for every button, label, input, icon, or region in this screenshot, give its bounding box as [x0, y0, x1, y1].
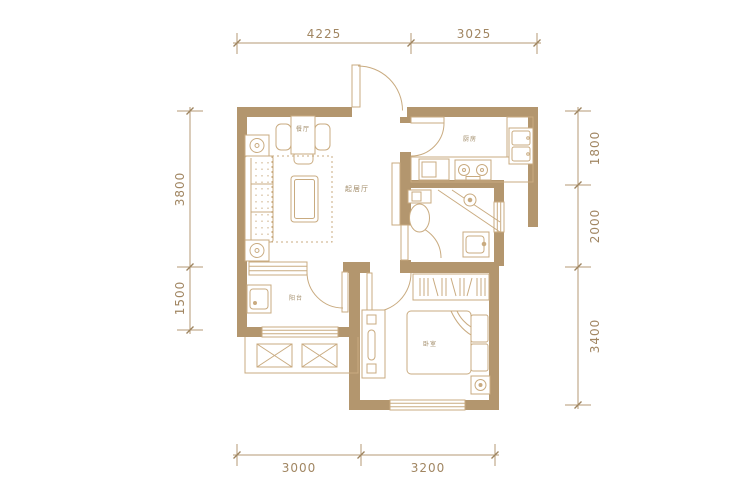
label-balcony: 阳台: [289, 294, 303, 302]
window-bathroom-right: [494, 202, 504, 232]
dim-bottom-1: 3000: [282, 461, 317, 475]
coffee-table: [291, 176, 318, 222]
dim-right-1: 1800: [588, 131, 602, 166]
window-bedroom-bottom: [390, 400, 465, 410]
pillow-1: [471, 315, 488, 342]
entry-door-arc: [358, 66, 403, 111]
pillow-2: [471, 344, 488, 371]
lamp-bottom-center: [255, 249, 259, 253]
platform-box-1: [257, 344, 292, 367]
label-bedroom: 卧室: [423, 340, 437, 348]
wardrobe: [413, 274, 489, 300]
wall-top-right: [407, 107, 538, 117]
kitchen-door-leaf: [411, 117, 444, 123]
washing-machine: [247, 285, 271, 313]
dim-right-3: 3400: [588, 319, 602, 354]
dim-top-2: 3025: [457, 27, 492, 41]
kitchen-door: [411, 117, 444, 156]
dim-right-2: 2000: [588, 209, 602, 244]
dim-bottom: [233, 444, 499, 466]
kitchen-door-arc: [411, 123, 444, 156]
wall-bath-right-upper: [494, 188, 504, 202]
wall-kitchen-bath-divider: [400, 180, 504, 188]
sofa: [245, 156, 273, 242]
furniture-bedroom: [362, 274, 490, 394]
balcony-door-arc: [307, 272, 343, 308]
label-kitchen: 厨房: [463, 135, 477, 143]
bedroom-door: [367, 273, 411, 313]
dim-left-2: 1500: [173, 281, 187, 316]
nightstand: [471, 376, 490, 394]
floor-plan-svg: 餐厅 起居厅 厨房 阳台 卧室: [0, 0, 740, 493]
window-balcony-bottom: [262, 327, 338, 337]
dim-top: [233, 33, 541, 54]
window-balcony-divider: [249, 262, 307, 275]
wall-balcony-sill-left: [237, 327, 262, 337]
dim-left-1: 3800: [173, 172, 187, 207]
toilet: [408, 190, 431, 232]
bedroom-door-arc: [372, 273, 411, 312]
shower-corner: [438, 190, 500, 232]
furniture-balcony: [247, 285, 271, 313]
dining-chair-right: [315, 124, 330, 150]
wall-living-bedroom-divider: [343, 262, 370, 273]
dining-chair-left: [276, 124, 291, 150]
dim-top-1: 4225: [307, 27, 342, 41]
wall-balcony-sill-right: [338, 327, 360, 337]
balcony-exterior-platform: [245, 337, 358, 373]
bathroom-door-leaf: [401, 225, 408, 260]
wall-bedroom-bottom-right: [464, 400, 499, 410]
bedroom-door-leaf: [367, 273, 372, 313]
balcony-door-leaf: [342, 272, 348, 312]
dining-table: [291, 116, 315, 154]
label-dining: 餐厅: [296, 125, 310, 133]
kitchen-sink: [509, 128, 533, 164]
lamp-top-center: [255, 144, 259, 148]
wall-bath-right-lower: [494, 232, 504, 266]
label-living: 起居厅: [345, 185, 369, 193]
entry-door: [352, 65, 403, 111]
entry-door-leaf: [352, 65, 360, 107]
floor-plan-canvas: 餐厅 起居厅 厨房 阳台 卧室: [0, 0, 740, 493]
furniture-living-dining: [245, 116, 400, 261]
dresser: [362, 310, 385, 378]
wall-bath-left-top-stub: [400, 117, 411, 123]
furniture-kitchen: [411, 117, 533, 182]
bathroom-sink: [463, 232, 489, 257]
dim-bottom-2: 3200: [411, 461, 446, 475]
wall-bedroom-bottom-left: [355, 400, 391, 410]
tv-cabinet: [392, 163, 400, 225]
balcony-door: [307, 272, 348, 312]
stove: [455, 160, 491, 180]
wall-bath-left: [400, 152, 411, 225]
bed: [407, 311, 488, 374]
furniture-bathroom: [408, 190, 500, 257]
platform-box-2: [302, 344, 337, 367]
wall-bath-bottom: [406, 262, 494, 273]
